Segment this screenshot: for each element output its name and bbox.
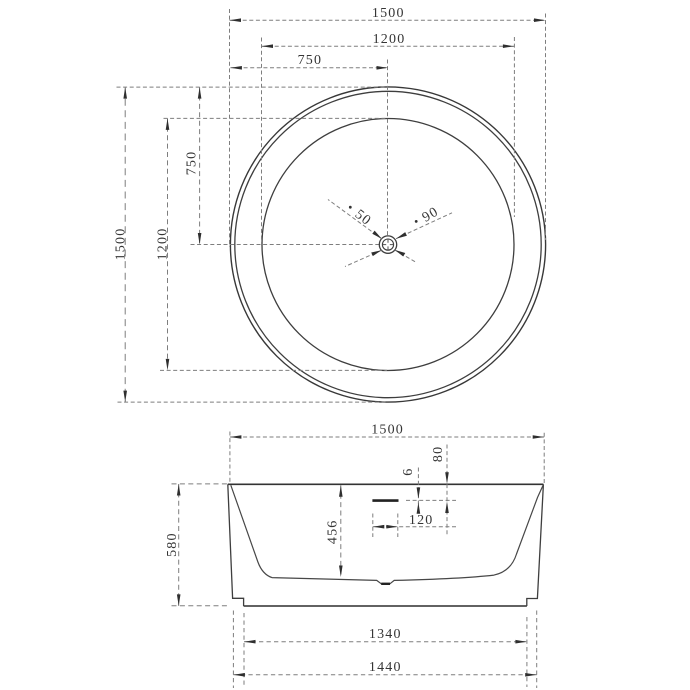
svg-text:80: 80 bbox=[431, 446, 446, 462]
svg-text:750: 750 bbox=[185, 151, 200, 176]
svg-text:1200: 1200 bbox=[373, 32, 406, 47]
svg-text:120: 120 bbox=[409, 513, 434, 528]
svg-text:90: 90 bbox=[420, 204, 442, 225]
svg-text:6: 6 bbox=[401, 468, 416, 476]
svg-text:1340: 1340 bbox=[369, 627, 402, 642]
svg-text:580: 580 bbox=[165, 532, 180, 557]
svg-text:750: 750 bbox=[298, 53, 323, 68]
svg-text:50: 50 bbox=[352, 207, 374, 229]
svg-text:1440: 1440 bbox=[369, 660, 402, 675]
svg-text:456: 456 bbox=[325, 519, 340, 544]
svg-text:1500: 1500 bbox=[114, 228, 129, 261]
svg-text:1200: 1200 bbox=[156, 228, 171, 261]
svg-text:1500: 1500 bbox=[371, 423, 404, 438]
svg-text:1500: 1500 bbox=[372, 6, 405, 21]
